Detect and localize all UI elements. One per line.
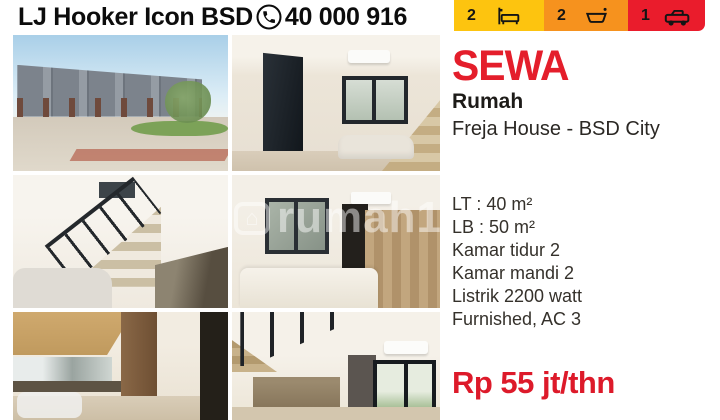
house-icon: ⌂ [234, 202, 270, 235]
property-details: LT : 40 m² LB : 50 m² Kamar tidur 2 Kama… [452, 193, 582, 331]
car-icon [650, 5, 705, 27]
flyer-canvas: LJ Hooker Icon BSD 40 000 916 2 2 [0, 0, 720, 420]
ac-unit-shape [348, 50, 390, 63]
bed-icon [476, 5, 544, 27]
grass-shape [131, 121, 228, 136]
site-watermark: ⌂ rumah12 [234, 193, 440, 243]
bed-shape [240, 268, 377, 308]
detail-bathrooms: Kamar mandi 2 [452, 262, 582, 285]
agency-phone: 40 000 916 [285, 3, 407, 32]
transaction-type: SEWA [452, 45, 569, 88]
bath-icon [566, 5, 628, 27]
ac-unit-shape [384, 341, 428, 354]
bedroom-count: 2 [467, 7, 476, 25]
photo-townhouse-exterior [13, 35, 228, 171]
price-label: Rp 55 jt/thn [452, 365, 615, 401]
window-bar-shape [372, 76, 376, 124]
garage-count: 1 [641, 7, 650, 25]
detail-furnished: Furnished, AC 3 [452, 308, 582, 331]
watermark-text: rumah12 [277, 193, 440, 243]
brick-path-shape [70, 149, 228, 161]
detail-building-area: LB : 50 m² [452, 216, 582, 239]
feature-badges: 2 2 1 [454, 0, 705, 31]
photo-dining-stairs [232, 312, 440, 420]
photo-stairs-kitchen [13, 175, 228, 308]
header: LJ Hooker Icon BSD 40 000 916 [18, 0, 407, 34]
property-type: Rumah [452, 90, 523, 114]
bathroom-count: 2 [557, 7, 566, 25]
mirror-backsplash-shape [13, 357, 112, 381]
counter-shape [13, 381, 121, 392]
doorway-shape [348, 355, 375, 411]
bedroom-badge: 2 [454, 0, 544, 31]
covered-sofa-shape [13, 268, 112, 308]
property-title: Freja House - BSD City [452, 118, 660, 141]
detail-electricity: Listrik 2200 watt [452, 285, 582, 308]
photo-living-room [232, 35, 440, 171]
detail-bedrooms: Kamar tidur 2 [452, 239, 582, 262]
phone-icon [256, 4, 282, 30]
garage-badge: 1 [628, 0, 705, 31]
door-frame-shape [200, 312, 228, 420]
photo-bedroom: ⌂ rumah12 [232, 175, 440, 308]
bathroom-badge: 2 [544, 0, 628, 31]
floor-shape [232, 407, 440, 420]
wrapped-items-shape [17, 392, 82, 418]
listing-panel: SEWA Rumah Freja House - BSD City LT : 4… [442, 33, 720, 420]
photo-grid: ⌂ rumah12 [13, 35, 440, 420]
photo-kitchen-corridor [13, 312, 228, 420]
detail-land-area: LT : 40 m² [452, 193, 582, 216]
covered-sofa-shape [338, 135, 414, 159]
agency-name: LJ Hooker Icon BSD [18, 3, 253, 32]
